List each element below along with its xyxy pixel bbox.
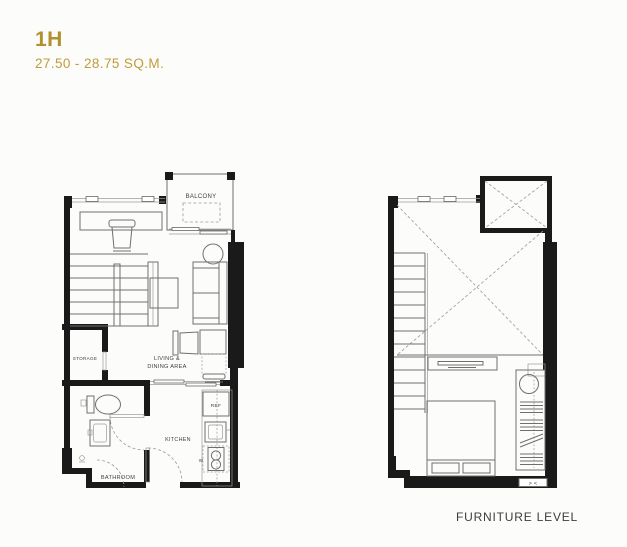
wall-post	[227, 172, 235, 180]
bathroom-door-swing	[110, 416, 144, 450]
living-label-line1: LIVING &	[154, 356, 180, 362]
balcony-void	[480, 176, 552, 233]
desk-chair	[109, 220, 135, 251]
balcony-area: BALCONY	[165, 172, 235, 234]
louver-vent: > <	[519, 479, 547, 488]
wall-post	[165, 172, 173, 180]
furniture-level-plan: > <	[388, 168, 563, 498]
shear-wall	[543, 242, 557, 370]
louver-glyph: > <	[529, 481, 538, 487]
storage-label: STORAGE	[73, 356, 97, 361]
bed	[427, 401, 495, 476]
coffee-table	[150, 278, 178, 308]
sliding-door	[169, 228, 231, 235]
stair-handrail	[114, 264, 120, 326]
entrance-door	[146, 448, 182, 482]
ref-label: REF	[211, 403, 222, 409]
kitchen-sink	[205, 422, 230, 442]
main-level-plan: BALCONY	[62, 168, 262, 498]
bathroom-door-leaf	[110, 415, 144, 418]
washer-label: W	[199, 458, 204, 463]
kitchen-label: KITCHEN	[165, 437, 191, 443]
hang-rod-icon	[520, 438, 543, 447]
refrigerator: REF	[203, 392, 229, 416]
window-wall	[398, 197, 480, 203]
entrance-door-swing	[148, 448, 182, 482]
floorplan-sheet: 1H 27.50 - 28.75 SQ.M. BALCONY	[0, 0, 627, 547]
staircase	[70, 254, 148, 326]
sofa	[193, 262, 227, 324]
pillow	[432, 463, 459, 473]
stove: W	[199, 446, 229, 472]
bathroom-sink	[88, 420, 110, 446]
side-table	[203, 244, 223, 264]
pillow	[463, 463, 490, 473]
unit-area-range: 27.50 - 28.75 SQ.M.	[35, 56, 164, 71]
kitchen-divider-wall	[62, 380, 238, 386]
shear-wall	[228, 242, 244, 368]
balcony-label: BALCONY	[186, 194, 217, 200]
furniture-level-caption: FURNITURE LEVEL	[456, 510, 578, 524]
living-label-line2: DINING AREA	[147, 364, 186, 370]
wardrobe	[516, 370, 545, 470]
dining-table	[200, 330, 226, 354]
double-height-void	[397, 205, 543, 355]
hang-rod-icon	[520, 434, 543, 443]
exterior-walls	[388, 195, 557, 488]
dining-chair-bottom	[202, 354, 226, 382]
vanity-stool	[520, 364, 546, 394]
window-wall	[72, 197, 165, 203]
toilet	[81, 395, 121, 414]
kitchen: REF W KITCHEN	[146, 390, 232, 486]
ac-unit-dashed	[183, 203, 220, 222]
storage-door-leaf	[103, 352, 106, 370]
dining-chair-left	[173, 331, 198, 355]
tv-console	[428, 357, 497, 370]
bathroom-label: BATHROOM	[101, 475, 135, 481]
unit-type-title: 1H	[35, 28, 63, 52]
shower-head-icon	[79, 456, 85, 462]
